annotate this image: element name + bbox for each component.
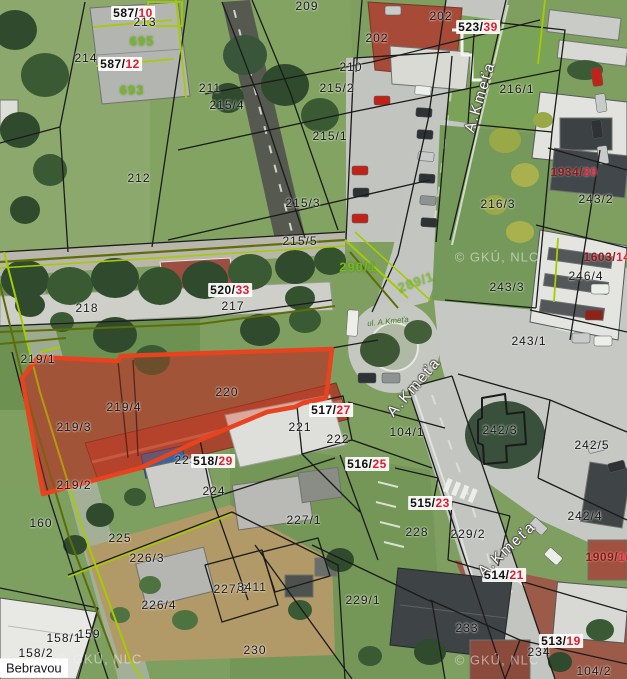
aerial-base-layer [0, 0, 627, 679]
cadastral-map-canvas[interactable]: 587/10213695214587/12693211215/420920220… [0, 0, 627, 679]
